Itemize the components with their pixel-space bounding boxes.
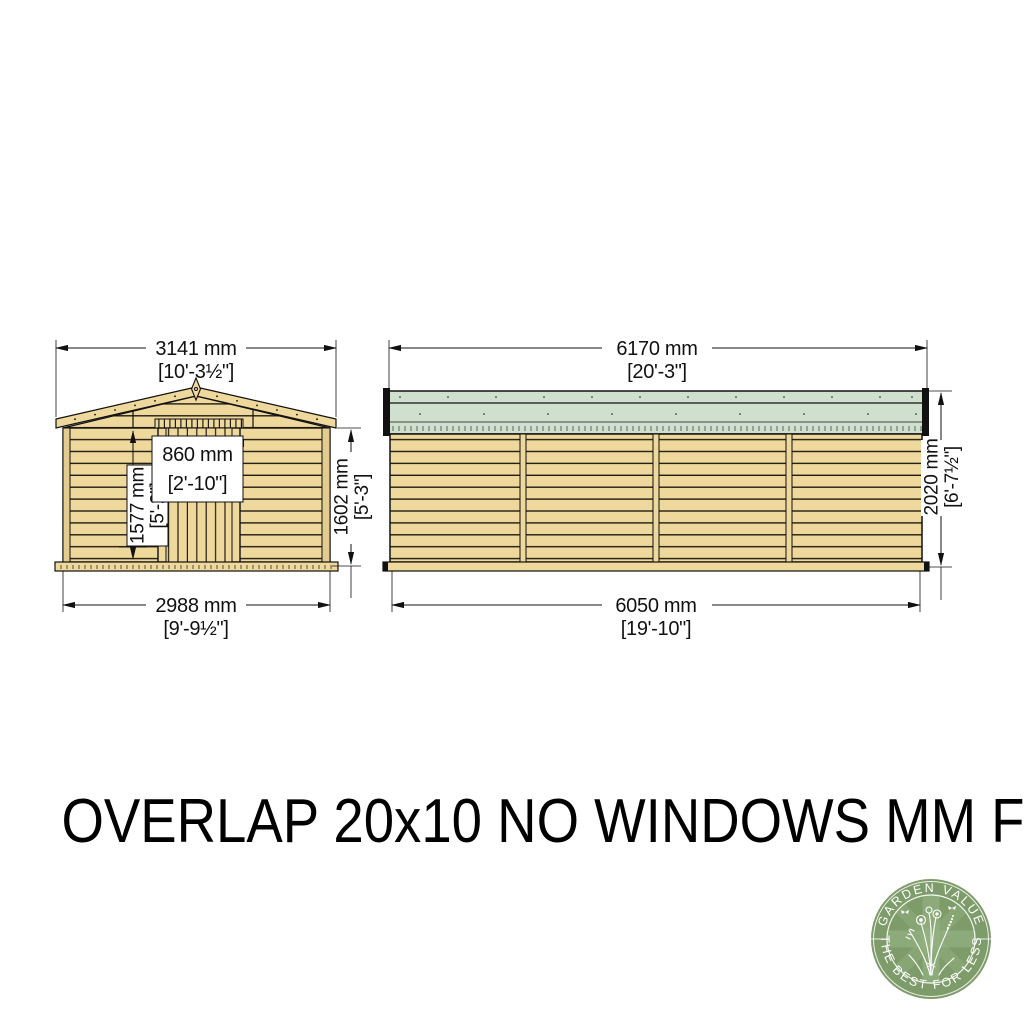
dim-side-roof-length: 6170 mm [20'-3"]	[389, 337, 927, 388]
side-roof-length-mm-label: 6170 mm	[616, 338, 697, 360]
dim-front-base-width: 2988 mm [9'-9½"]	[63, 571, 330, 640]
roof-end-cap-right	[922, 388, 929, 436]
door-width-ft-label: [2'-10"]	[168, 473, 228, 495]
garden-value-logo: GARDEN VALUE THE BEST FOR LESS	[868, 876, 994, 1002]
product-title: OVERLAP 20x10 NO WINDOWS MM FT	[61, 791, 962, 853]
door-head-trim	[155, 419, 243, 428]
front-roof-width-mm-label: 3141 mm	[155, 338, 236, 360]
side-panel-batten	[653, 434, 659, 562]
door-width-mm-label: 860 mm	[162, 444, 232, 466]
door-height-mm-label: 1577 mm	[128, 467, 149, 544]
side-panel-batten	[786, 434, 792, 562]
side-base-length-ft-label: [19'-10"]	[621, 618, 691, 640]
side-height-ft-label: [6'-7½"]	[942, 446, 963, 508]
front-floor-bearer	[55, 562, 338, 571]
front-eaves-height-ft-label: [5'-3"]	[352, 474, 373, 520]
dim-front-eaves-height: 1602 mm [5'-3"]	[331, 428, 373, 598]
front-roof-width-ft-label: [10'-3½"]	[158, 361, 234, 383]
dim-side-base-length: 6050 mm [19'-10"]	[392, 571, 920, 640]
side-roof-length-ft-label: [20'-3"]	[627, 361, 687, 383]
page-background: 3141 mm [10'-3½"] 1577 mm [5'-2"] 860 mm…	[0, 0, 1024, 1024]
side-base-length-mm-label: 6050 mm	[615, 595, 696, 617]
front-corner-batten-left	[63, 428, 70, 562]
roof-end-cap-left	[383, 388, 390, 436]
front-corner-batten-right	[322, 428, 330, 562]
dim-door-width: 860 mm [2'-10"]	[152, 436, 243, 502]
front-elevation: 3141 mm [10'-3½"] 1577 mm [5'-2"] 860 mm…	[55, 337, 373, 640]
front-eaves-height-mm-label: 1602 mm	[332, 458, 353, 535]
side-elevation: 6170 mm [20'-3"] 2020 mm [6'-7½"] 6050 m…	[383, 337, 963, 640]
front-base-width-ft-label: [9'-9½"]	[163, 618, 228, 640]
side-panel-batten	[520, 434, 526, 562]
shed-technical-drawing: 3141 mm [10'-3½"] 1577 mm [5'-2"] 860 mm…	[0, 0, 1024, 1024]
front-base-width-mm-label: 2988 mm	[155, 595, 236, 617]
side-floor-bearer	[383, 562, 929, 571]
side-roof-fascia	[383, 388, 929, 436]
side-height-mm-label: 2020 mm	[922, 438, 943, 515]
